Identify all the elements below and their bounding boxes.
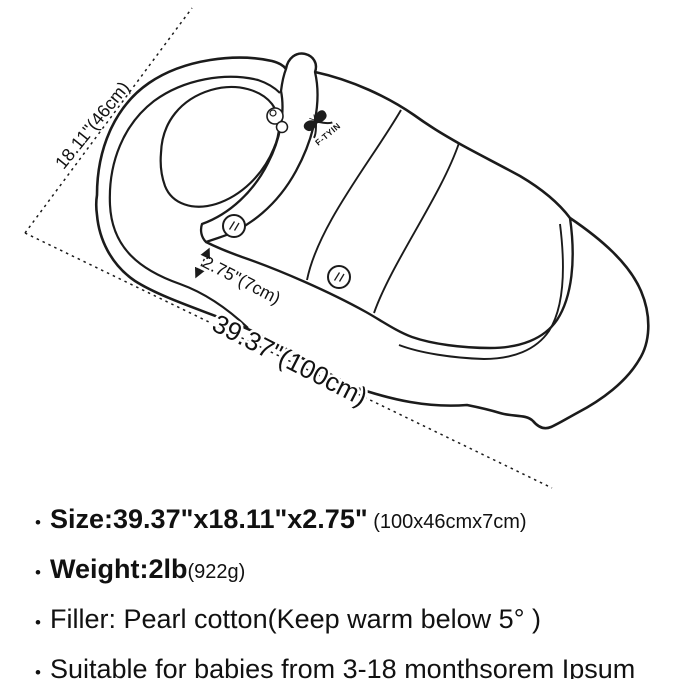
snap-button-lower [328,266,350,288]
spec-size-value: Size:39.37"x18.11"x2.75" [50,502,368,536]
spec-list: • Size:39.37"x18.11"x2.75" (100x46cmx7cm… [26,502,635,679]
bullet-icon: • [26,606,50,640]
product-line-drawing: F-TYIN 18.11"(46cm) 39.37"(100cm) 2.75"(… [0,0,679,500]
spec-size-metric-note: (100x46cmx7cm) [368,505,527,539]
spec-row-filler: • Filler: Pearl cotton(Keep warm below 5… [26,602,635,640]
spec-suitability-value: Suitable for babies from 3-18 monthsorem… [50,652,635,679]
spec-filler-value: Filler: Pearl cotton(Keep warm below 5° … [50,602,541,636]
product-spec-image: F-TYIN 18.11"(46cm) 39.37"(100cm) 2.75"(… [0,0,679,679]
spec-weight-metric-note: (922g) [188,555,246,589]
spec-row-size: • Size:39.37"x18.11"x2.75" (100x46cmx7cm… [26,502,635,540]
bullet-icon: • [26,656,50,679]
bullet-icon: • [26,556,50,590]
snap-button-upper [223,215,245,237]
spec-row-weight: • Weight:2lb (922g) [26,552,635,590]
spec-weight-value: Weight:2lb [50,552,188,586]
spec-row-suitability: • Suitable for babies from 3-18 monthsor… [26,652,635,679]
bullet-icon: • [26,506,50,540]
